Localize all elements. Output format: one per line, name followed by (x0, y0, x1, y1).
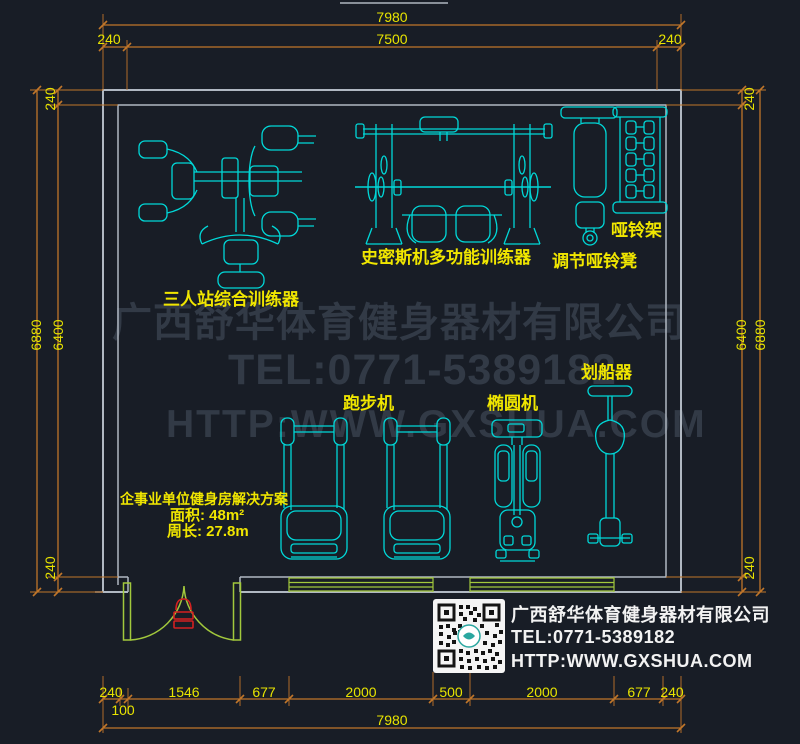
dim-bottom-seg: 677 (252, 684, 275, 700)
door-jambs (95, 577, 240, 592)
label-dumbbell-bench: 调节哑铃凳 (552, 247, 637, 272)
dumbbell-rack-drawing (613, 107, 667, 213)
elliptical-drawing (492, 420, 542, 561)
dim-right-top-offset: 240 (741, 87, 757, 110)
label-smith-machine: 史密斯机多功能训练器 (361, 243, 531, 268)
dim-top-inner: 7500 (376, 31, 407, 47)
window-band-left (289, 577, 433, 592)
multi-station-trainer-drawing (139, 126, 316, 288)
dim-bottom-seg: 1546 (168, 684, 199, 700)
cad-floor-plan: 广西舒华体育健身器材有限公司 TEL:0771-5389182 HTTP:WWW… (0, 0, 800, 744)
dim-bottom-seg: 677 (627, 684, 650, 700)
treadmill-2-drawing (384, 418, 450, 559)
dim-right-bottom-offset: 240 (741, 556, 757, 579)
label-elliptical: 椭圆机 (487, 389, 538, 414)
label-dumbbell-rack: 哑铃架 (611, 216, 662, 241)
label-multi-station: 三人站综合训练器 (163, 285, 299, 310)
qr-code (433, 599, 505, 673)
dim-bottom-seg: 2000 (345, 684, 376, 700)
dim-left-top-offset: 240 (42, 87, 58, 110)
windows (289, 577, 614, 592)
dim-bottom-offset-small: 100 (111, 702, 134, 718)
label-rower: 划船器 (581, 358, 632, 383)
dim-bottom-overall: 7980 (376, 712, 407, 728)
dim-bottom-seg: 500 (439, 684, 462, 700)
dim-top-overall: 7980 (376, 9, 407, 25)
dim-bottom-seg: 240 (99, 684, 122, 700)
label-treadmill: 跑步机 (343, 389, 394, 414)
treadmill-1-drawing (281, 418, 347, 559)
door-marker-symbol (174, 599, 193, 628)
dim-left-outer: 6880 (28, 319, 44, 350)
dim-bottom-seg: 240 (660, 684, 683, 700)
door-swing-arcs (131, 586, 234, 640)
card-company-tel: TEL:0771-5389182 (511, 627, 675, 648)
dumbbell-bench-drawing (561, 107, 617, 245)
dim-right-outer: 6880 (752, 319, 768, 350)
card-company-site: HTTP:WWW.GXSHUA.COM (511, 651, 752, 672)
smith-machine-drawing (355, 117, 552, 244)
card-company-name: 广西舒华体育健身器材有限公司 (511, 601, 770, 627)
rower-drawing (588, 386, 632, 546)
window-band-right (470, 577, 614, 592)
dim-right-inner: 6400 (733, 319, 749, 350)
dim-bottom-seg: 2000 (526, 684, 557, 700)
dim-left-inner: 6400 (50, 319, 66, 350)
solution-perimeter: 周长: 27.8m (167, 520, 249, 541)
dim-top-right-offset: 240 (658, 31, 681, 47)
dim-left-bottom-offset: 240 (42, 556, 58, 579)
plan-linework (0, 0, 800, 744)
dim-top-left-offset: 240 (97, 31, 120, 47)
